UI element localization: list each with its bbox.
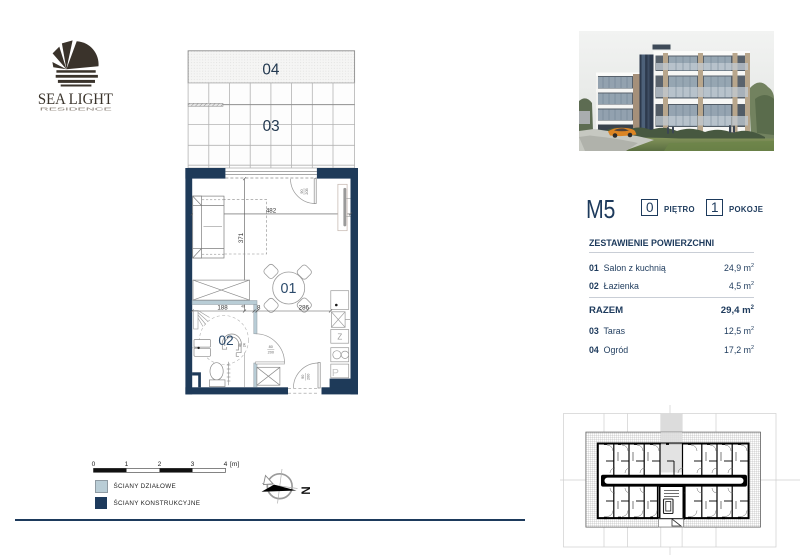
svg-text:200: 200 xyxy=(268,350,274,354)
svg-text:Z: Z xyxy=(337,332,342,341)
svg-text:90: 90 xyxy=(300,189,304,193)
svg-text:03: 03 xyxy=(263,118,280,135)
svg-text:P: P xyxy=(332,367,339,379)
svg-text:200: 200 xyxy=(306,374,310,380)
svg-text:SEA LIGHT: SEA LIGHT xyxy=(38,91,113,108)
svg-text:1: 1 xyxy=(125,461,129,468)
svg-text:286: 286 xyxy=(299,304,310,311)
svg-text:205: 205 xyxy=(305,188,309,194)
svg-text:482: 482 xyxy=(266,207,277,214)
svg-text:01: 01 xyxy=(281,281,297,297)
svg-text:90: 90 xyxy=(301,375,305,379)
svg-text:188: 188 xyxy=(217,304,228,311)
svg-text:2: 2 xyxy=(158,461,162,468)
svg-text:46: 46 xyxy=(238,343,242,347)
svg-text:3: 3 xyxy=(191,461,195,468)
svg-text:02: 02 xyxy=(218,333,233,348)
svg-text:RESIDENCE: RESIDENCE xyxy=(40,107,112,112)
svg-text:8: 8 xyxy=(257,304,261,311)
svg-text:N: N xyxy=(298,486,310,494)
svg-text:04: 04 xyxy=(262,62,280,79)
svg-text:[m]: [m] xyxy=(230,461,239,468)
svg-text:371: 371 xyxy=(238,232,245,243)
svg-text:40: 40 xyxy=(241,304,245,308)
svg-text:0: 0 xyxy=(92,461,96,468)
svg-text:80: 80 xyxy=(269,345,273,349)
svg-text:4: 4 xyxy=(224,461,228,468)
svg-text:24: 24 xyxy=(242,343,246,347)
